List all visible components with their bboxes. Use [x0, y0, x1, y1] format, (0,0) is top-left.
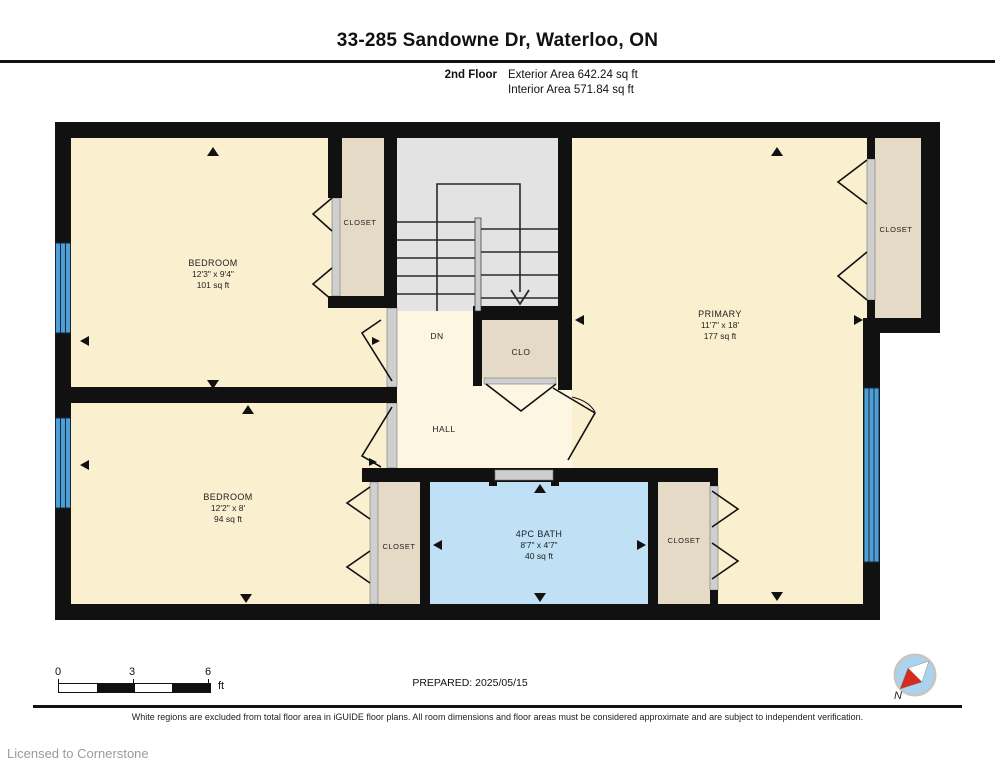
- clo-door-wall: [484, 378, 556, 384]
- primary-area: 177 sq ft: [704, 331, 737, 341]
- wall-bath-left: [420, 468, 430, 604]
- scale-tick-6: 6: [205, 666, 211, 678]
- wall-clo-left: [473, 306, 482, 386]
- bath-door-jamb-left: [489, 480, 497, 486]
- wall-closet-br-stub-bottom: [710, 590, 718, 604]
- closet-tl-door-wall: [332, 198, 340, 296]
- wall-top: [55, 122, 940, 138]
- wall-closet-tr-stub-top: [867, 138, 875, 159]
- bedroom-bl-dims: 12'2" x 8': [211, 503, 246, 513]
- scale-bar-segments: [58, 683, 211, 693]
- bedroom-bl-name: BEDROOM: [203, 492, 252, 502]
- closet-bl-label: CLOSET: [382, 542, 415, 551]
- bedroom-tl-floor-ext: [332, 308, 387, 387]
- stair-divider: [475, 218, 481, 311]
- scale-bar: 0 3 6 ft: [58, 666, 228, 696]
- primary-floor: [572, 138, 867, 468]
- wall-bath-right: [648, 468, 658, 604]
- bath-name: 4PC BATH: [516, 529, 563, 539]
- clo-label: CLO: [512, 347, 531, 357]
- wall-closet-tr-stub-bottom: [867, 300, 875, 318]
- bedroom-tl-area: 101 sq ft: [197, 280, 230, 290]
- closet-br-door-wall: [710, 486, 718, 590]
- hall-label: HALL: [432, 424, 455, 434]
- floor-plan: BEDROOM 12'3" x 9'4" 101 sq ft CLOSET DN…: [0, 0, 995, 768]
- bath-door-wall: [495, 470, 553, 480]
- bedroom-bl-area: 94 sq ft: [214, 514, 243, 524]
- scale-tick-0: 0: [55, 666, 61, 678]
- bath-area: 40 sq ft: [525, 551, 554, 561]
- window-primary: [864, 388, 879, 562]
- closet-bl-door-wall: [370, 482, 378, 604]
- closet-tr-label: CLOSET: [879, 225, 912, 234]
- primary-dims: 11'7" x 18': [701, 320, 740, 330]
- bedroom-tl-dims: 12'3" x 9'4": [192, 269, 234, 279]
- wall-closet-tl-stub: [328, 138, 342, 198]
- bath-dims: 8'7" x 4'7": [520, 540, 557, 550]
- wall-right-upper: [921, 122, 940, 333]
- compass-icon: N: [884, 648, 948, 708]
- wall-stair-left: [384, 138, 397, 308]
- license-text: Licensed to Cornerstone: [7, 746, 149, 761]
- wall-step: [863, 318, 940, 333]
- bedroom-tl-name: BEDROOM: [188, 258, 237, 268]
- bath-door-jamb-right: [551, 480, 559, 486]
- wall-bottom: [55, 604, 880, 620]
- stairs-dn-label: DN: [430, 331, 443, 341]
- primary-name: PRIMARY: [698, 309, 742, 319]
- disclaimer-text: White regions are excluded from total fl…: [0, 712, 995, 722]
- window-bedroom-bl: [56, 418, 71, 508]
- wall-closet-br-stub-top: [710, 468, 718, 486]
- wall-stair-right: [558, 138, 572, 390]
- closet-br-label: CLOSET: [667, 536, 700, 545]
- wall-clo-top: [473, 306, 572, 320]
- window-bedroom-tl: [56, 243, 71, 333]
- wall-left: [55, 122, 71, 620]
- scale-tick-3: 3: [129, 666, 135, 678]
- primary-floor-lower: [718, 468, 863, 604]
- floor-fills: [70, 138, 921, 604]
- wall-between-bedrooms: [55, 387, 397, 403]
- footer-divider: [33, 705, 962, 708]
- closet-tr-door-wall: [867, 159, 875, 300]
- prepared-date: PREPARED: 2025/05/15: [320, 677, 620, 689]
- scale-unit: ft: [218, 680, 224, 692]
- closet-tl-label: CLOSET: [343, 218, 376, 227]
- compass-north-label: N: [894, 690, 902, 702]
